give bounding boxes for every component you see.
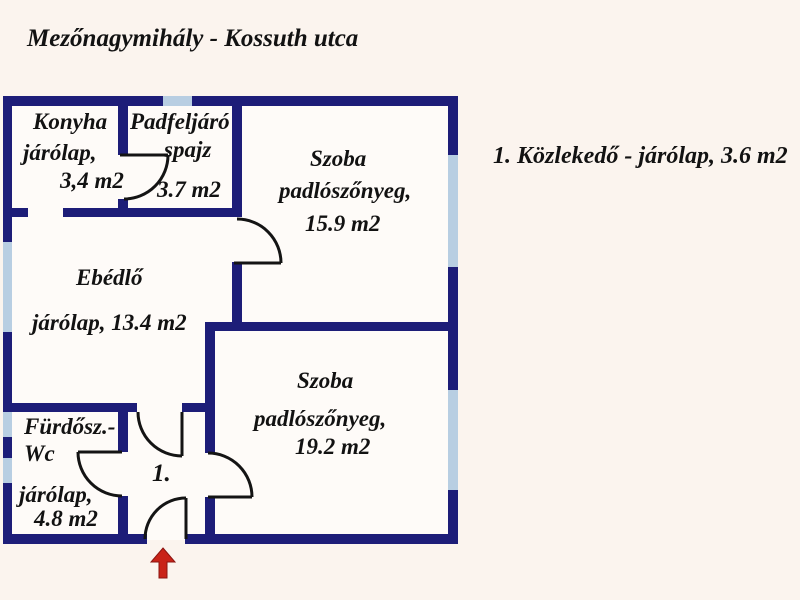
doors-overlay [0,0,800,600]
szoba2-flooring: padlószőnyeg, [254,407,386,431]
entrance-arrow-icon [151,548,175,578]
szoba1-label: Szoba [310,147,366,171]
spajz-area: 3.7 m2 [157,178,221,202]
konyha-area: 3,4 m2 [60,169,124,193]
hall-number: 1. [152,461,171,487]
szoba1-area: 15.9 m2 [305,212,380,236]
ebedlo-hall-door-arc [138,412,182,456]
spajz-label-2: spajz [164,138,211,162]
furdo-label-2: Wc [24,442,55,466]
spajz-label-1: Padfeljáró [130,110,230,134]
ebedlo-flooring-area: járólap, 13.4 m2 [32,311,187,335]
szoba2-label: Szoba [297,369,353,393]
szoba1-flooring: padlószőnyeg, [279,179,411,203]
szoba1-door-arc [237,219,281,263]
ebedlo-label: Ebédlő [76,266,142,290]
furdo-flooring: járólap, [19,483,92,507]
konyha-label: Konyha [33,110,107,134]
szoba2-door-arc [208,453,252,497]
konyha-flooring: járólap, [23,141,96,165]
entrance-door-arc [145,498,186,539]
furdo-label-1: Fürdősz.- [24,415,115,439]
szoba2-area: 19.2 m2 [295,435,370,459]
furdo-area: 4.8 m2 [34,507,98,531]
